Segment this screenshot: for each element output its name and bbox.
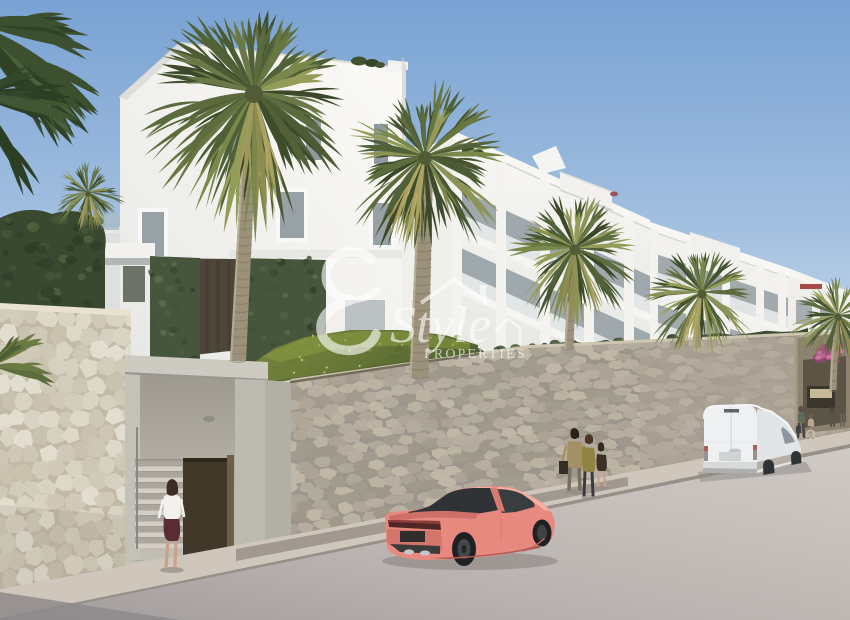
- svg-text:Style: Style: [390, 297, 491, 354]
- svg-text:PROPERTIES: PROPERTIES: [424, 347, 527, 362]
